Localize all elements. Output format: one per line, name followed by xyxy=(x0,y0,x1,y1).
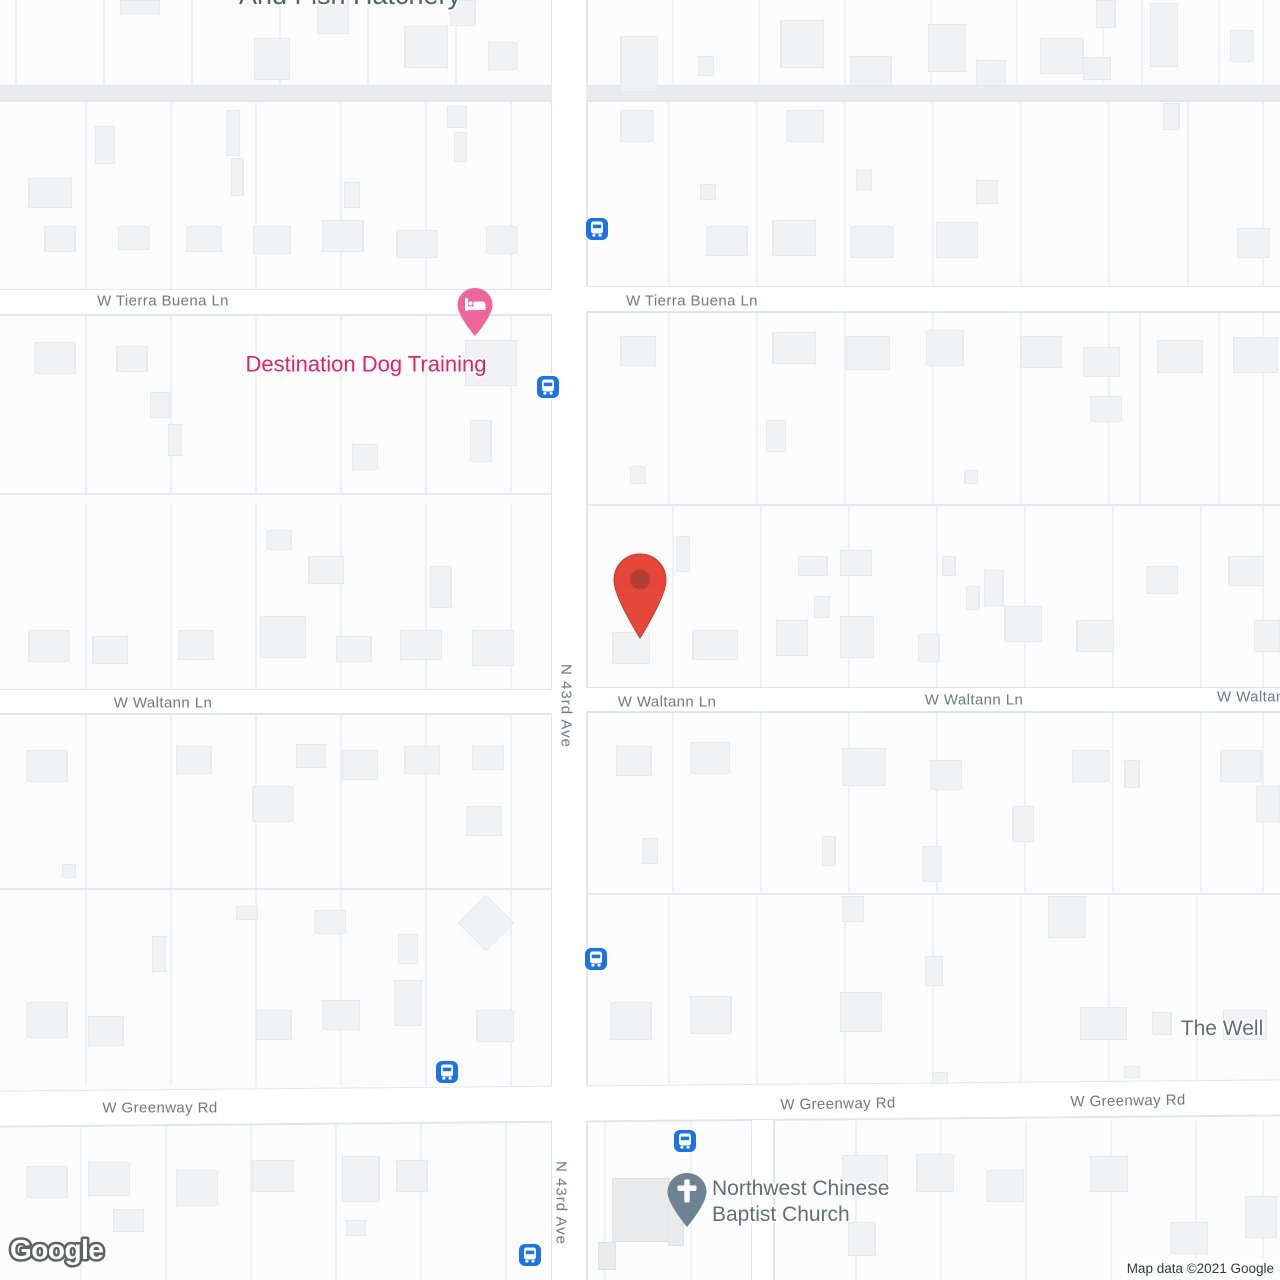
bus-glyph xyxy=(674,1130,696,1152)
bus-glyph xyxy=(537,376,559,398)
church-cross-icon xyxy=(666,1172,708,1228)
church-pin-marker[interactable] xyxy=(666,1172,708,1228)
bus-stop-icon[interactable] xyxy=(436,1061,458,1083)
lodging-bed-icon xyxy=(456,287,494,337)
google-logo-text: Google xyxy=(10,1234,103,1265)
destination-red-pin-marker[interactable] xyxy=(612,552,668,640)
map-canvas[interactable]: W Tierra Buena LnW Tierra Buena LnW Walt… xyxy=(0,0,1280,1280)
bus-stop-icon[interactable] xyxy=(537,376,559,398)
bus-stop-icon[interactable] xyxy=(585,948,607,970)
map-attribution: Map data ©2021 Google xyxy=(1121,1258,1280,1280)
bus-glyph xyxy=(585,948,607,970)
bus-glyph xyxy=(519,1244,541,1266)
bus-glyph xyxy=(586,218,608,240)
google-logo-watermark[interactable]: Google xyxy=(6,1229,124,1274)
red-pin-icon xyxy=(612,552,668,640)
markers-layer xyxy=(0,0,1280,1280)
bus-stop-icon[interactable] xyxy=(519,1244,541,1266)
lodging-pin-marker[interactable] xyxy=(456,287,494,337)
bus-glyph xyxy=(436,1061,458,1083)
bus-stop-icon[interactable] xyxy=(586,218,608,240)
bus-stop-icon[interactable] xyxy=(674,1130,696,1152)
